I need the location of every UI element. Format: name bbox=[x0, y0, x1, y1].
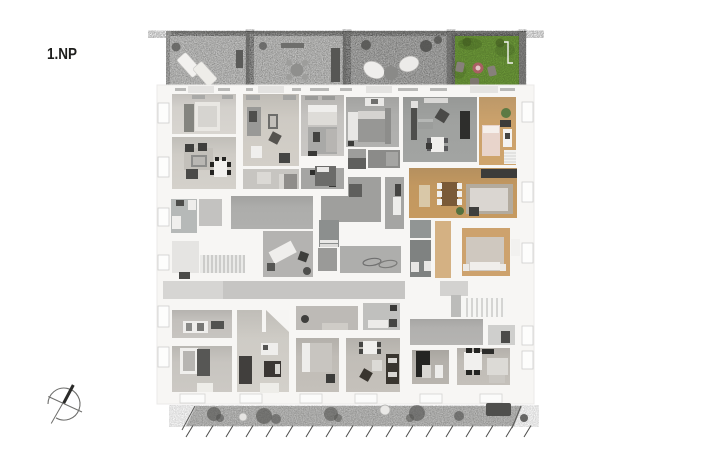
svg-text:1.NP: 1.NP bbox=[47, 46, 77, 63]
